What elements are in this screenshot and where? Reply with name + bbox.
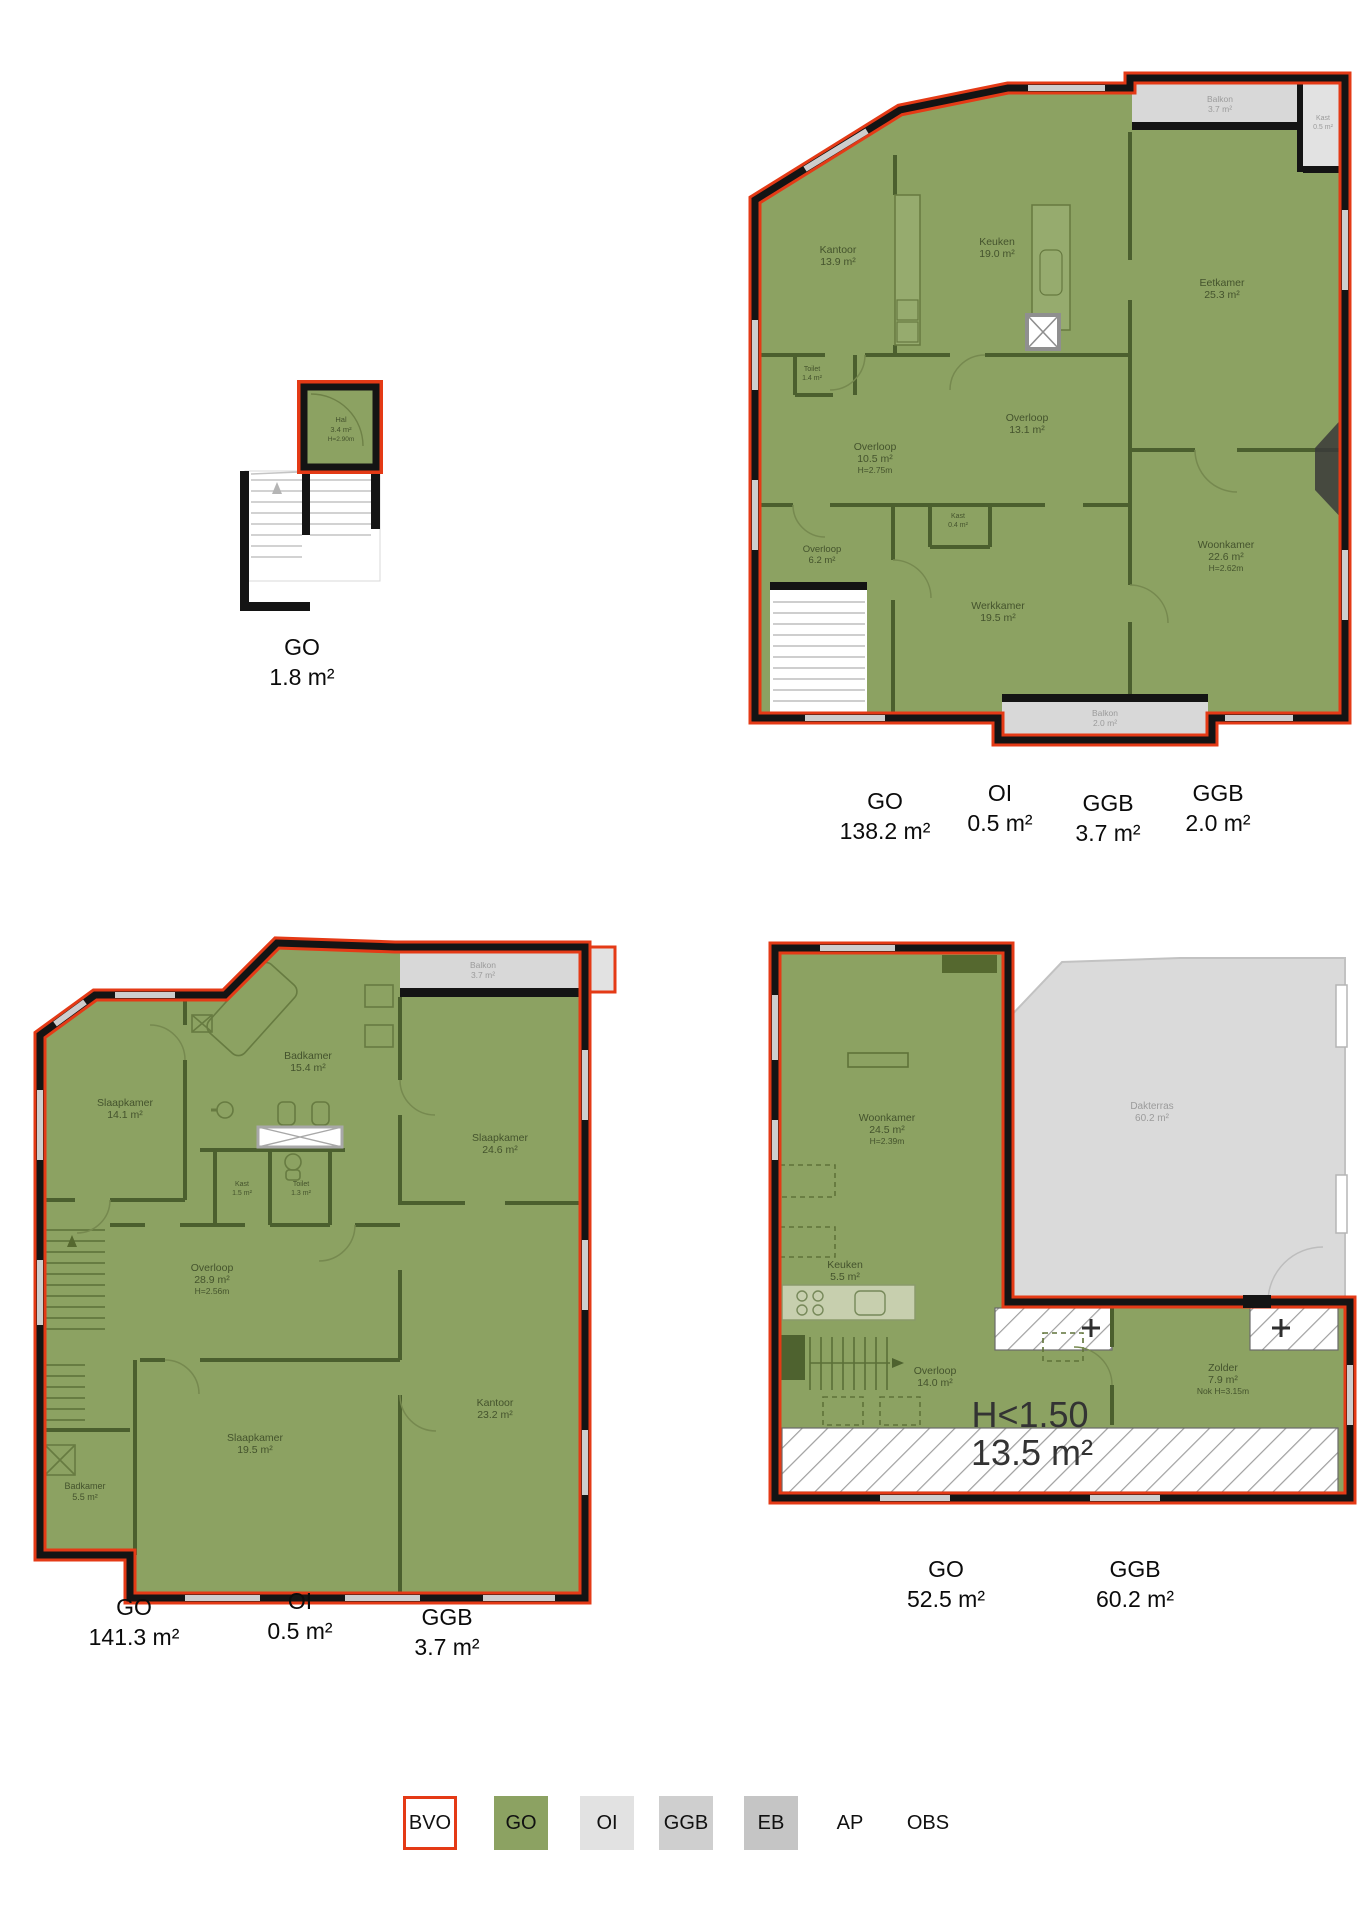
- summary-second-oi: OI 0.5 m²: [230, 1586, 370, 1646]
- room-area: 7.9 m²: [1208, 1374, 1238, 1386]
- wall-notch: [1243, 1295, 1271, 1308]
- room-label: Overloop: [803, 544, 842, 555]
- room-label: Toilet: [293, 1181, 309, 1188]
- room-label: Kast: [1316, 115, 1330, 122]
- legend-label: OI: [596, 1812, 617, 1835]
- summary-value: 141.3 m²: [64, 1622, 204, 1652]
- summary-label: GO: [232, 632, 372, 662]
- room-note: H=2.62m: [1209, 563, 1244, 573]
- wall: [1132, 122, 1303, 130]
- room-label: Toilet: [804, 366, 820, 373]
- summary-value: 60.2 m²: [1065, 1584, 1205, 1614]
- summary-attic-ggb: GGB 60.2 m²: [1065, 1554, 1205, 1614]
- legend-item-obs: OBS: [893, 1796, 963, 1850]
- wall: [240, 602, 310, 611]
- room-area: 6.2 m²: [809, 555, 836, 566]
- wall: [1002, 694, 1208, 702]
- legend-label: OBS: [893, 1796, 963, 1850]
- stairwell: [770, 590, 867, 712]
- wall: [240, 471, 249, 611]
- roof-terrace: [1005, 958, 1345, 1305]
- shaft: [1027, 315, 1059, 349]
- room-label: Werkkamer: [971, 600, 1025, 612]
- summary-first-ggb2: GGB 2.0 m²: [1148, 778, 1288, 838]
- room-label: Overloop: [191, 1262, 234, 1274]
- summary-entrance-go: GO 1.8 m²: [232, 632, 372, 692]
- room-area: 23.2 m²: [477, 1409, 513, 1421]
- room-area: 1.3 m²: [291, 1190, 312, 1197]
- room-area: 13.9 m²: [820, 256, 856, 268]
- room-note: H=2.39m: [870, 1136, 905, 1146]
- summary-label: OI: [230, 1586, 370, 1616]
- legend-swatch-oi: OI: [580, 1796, 634, 1850]
- tv-cabinet: [942, 955, 997, 973]
- legend-label: GO: [505, 1812, 536, 1835]
- summary-label: GO: [64, 1592, 204, 1622]
- wall: [371, 471, 380, 529]
- room-area: 3.4 m²: [330, 425, 352, 434]
- summary-value: 52.5 m²: [876, 1584, 1016, 1614]
- room-area: 14.0 m²: [917, 1377, 953, 1389]
- terrace-window: [1336, 1175, 1347, 1233]
- room-label: Slaapkamer: [227, 1432, 284, 1444]
- room-area: 25.3 m²: [1204, 289, 1240, 301]
- legend-swatch-go: GO: [494, 1796, 548, 1850]
- legend-item-eb: EB: [744, 1796, 798, 1850]
- room-area: 13.1 m²: [1009, 424, 1045, 436]
- room-label: Kantoor: [820, 244, 857, 256]
- room-label: Badkamer: [64, 1481, 105, 1491]
- legend-label: AP: [820, 1796, 880, 1850]
- summary-value: 2.0 m²: [1148, 808, 1288, 838]
- room-label: Woonkamer: [1198, 539, 1255, 551]
- room-area: 24.5 m²: [869, 1124, 905, 1136]
- legend-label: BVO: [409, 1812, 451, 1835]
- room-label: Balkon: [1207, 94, 1233, 104]
- room-area: 14.1 m²: [107, 1109, 143, 1121]
- plan-entrance: Hal 3.4 m² H=2.90m: [225, 370, 400, 640]
- room-area: 22.6 m²: [1208, 551, 1244, 563]
- room-label: Kast: [951, 513, 965, 520]
- room-label: Keuken: [827, 1259, 863, 1271]
- room-label: Kantoor: [477, 1397, 514, 1409]
- room-label: Zolder: [1208, 1362, 1238, 1374]
- summary-second-go: GO 141.3 m²: [64, 1592, 204, 1652]
- legend-label: EB: [758, 1812, 785, 1835]
- room-area: 10.5 m²: [857, 453, 893, 465]
- room-area: 5.5 m²: [72, 1492, 98, 1502]
- room-area: 24.6 m²: [482, 1144, 518, 1156]
- legend-item-oi: OI: [580, 1796, 634, 1850]
- floor-area-go: [40, 943, 585, 1598]
- room-label: Balkon: [470, 960, 496, 970]
- room-label: Keuken: [979, 236, 1015, 248]
- plan-first-floor: Kantoor 13.9 m² Keuken 19.0 m² Eetkamer …: [745, 60, 1358, 760]
- room-area: 1.4 m²: [802, 375, 823, 382]
- room-label: Slaapkamer: [472, 1132, 529, 1144]
- legend-swatch-eb: EB: [744, 1796, 798, 1850]
- wall: [1297, 82, 1303, 172]
- room-label: Eetkamer: [1200, 277, 1245, 289]
- room-area: 19.0 m²: [979, 248, 1015, 260]
- room-label: Woonkamer: [859, 1112, 916, 1124]
- stairwell: [245, 471, 380, 581]
- room-label: Overloop: [854, 441, 897, 453]
- room-note: H=2.75m: [858, 465, 893, 475]
- summary-label: GGB: [1148, 778, 1288, 808]
- legend-label: GGB: [664, 1812, 708, 1835]
- room-area: 15.4 m²: [290, 1062, 326, 1074]
- summary-value: 0.5 m²: [230, 1616, 370, 1646]
- legend-item-bvo: BVO: [403, 1796, 457, 1850]
- summary-second-ggb: GGB 3.7 m²: [377, 1602, 517, 1662]
- terrace-window: [1336, 985, 1347, 1047]
- room-area: 60.2 m²: [1135, 1113, 1170, 1124]
- summary-value: 1.8 m²: [232, 662, 372, 692]
- low-height-area: 13.5 m²: [971, 1432, 1093, 1473]
- summary-label: GO: [876, 1554, 1016, 1584]
- wall: [1303, 166, 1343, 173]
- summary-label: GGB: [377, 1602, 517, 1632]
- room-area: 28.9 m²: [194, 1274, 230, 1286]
- room-area: 0.5 m²: [1313, 124, 1334, 131]
- plan-attic-floor: Woonkamer 24.5 m² H=2.39m Keuken 5.5 m² …: [760, 935, 1358, 1510]
- floorplan-sheet: Hal 3.4 m² H=2.90m: [0, 0, 1358, 1920]
- room-label: Overloop: [914, 1365, 957, 1377]
- legend-item-ap: AP: [820, 1796, 880, 1850]
- room-area: 1.5 m²: [232, 1190, 253, 1197]
- low-height-label: H<1.50: [971, 1394, 1088, 1435]
- summary-attic-go: GO 52.5 m²: [876, 1554, 1016, 1614]
- summary-label: GGB: [1065, 1554, 1205, 1584]
- closet-oi: [588, 947, 615, 992]
- room-area: 5.5 m²: [830, 1271, 860, 1283]
- room-label: Hal: [335, 415, 347, 424]
- room-note: H=2.56m: [195, 1286, 230, 1296]
- room-label: Slaapkamer: [97, 1097, 154, 1109]
- room-area: 19.5 m²: [237, 1444, 273, 1456]
- low-height-zone: [1250, 1308, 1338, 1350]
- room-area: 2.0 m²: [1093, 718, 1117, 728]
- room-label: Overloop: [1006, 412, 1049, 424]
- room-label: Badkamer: [284, 1050, 332, 1062]
- room-note: Nok H=3.15m: [1197, 1386, 1249, 1396]
- legend-item-go: GO: [494, 1796, 548, 1850]
- room-area: 3.7 m²: [471, 970, 495, 980]
- legend-item-ggb: GGB: [659, 1796, 713, 1850]
- shaft: [258, 1127, 342, 1147]
- room-label: Balkon: [1092, 708, 1118, 718]
- wall: [302, 471, 310, 535]
- legend-swatch-bvo: BVO: [403, 1796, 457, 1850]
- room-area: 0.4 m²: [948, 522, 969, 529]
- room-note: H=2.90m: [328, 436, 355, 443]
- room-area: 3.7 m²: [1208, 104, 1232, 114]
- summary-value: 3.7 m²: [377, 1632, 517, 1662]
- plan-second-floor: Slaapkamer 14.1 m² Badkamer 15.4 m² Slaa…: [15, 930, 625, 1610]
- legend-swatch-ggb: GGB: [659, 1796, 713, 1850]
- room-label: Dakterras: [1130, 1101, 1173, 1112]
- room-area: 19.5 m²: [980, 612, 1016, 624]
- wall: [770, 582, 867, 590]
- wall: [400, 988, 582, 997]
- room-label: Kast: [235, 1181, 249, 1188]
